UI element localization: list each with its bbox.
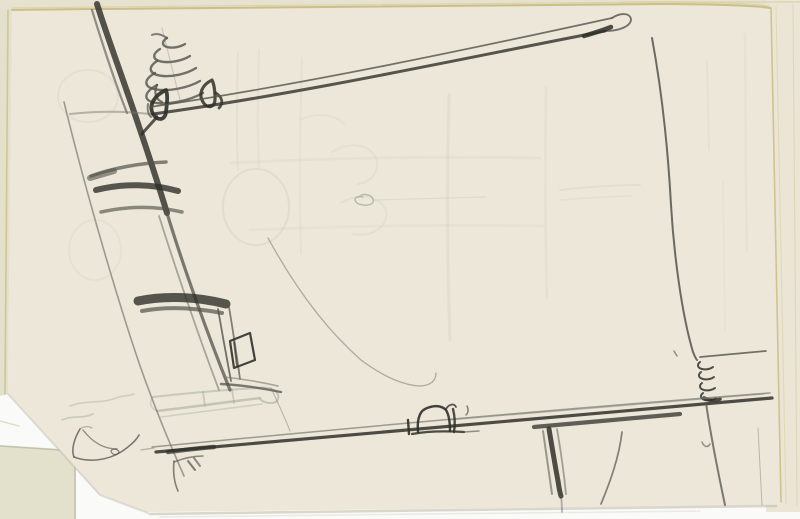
sketchbook-scan bbox=[0, 0, 800, 519]
sketch-drawing bbox=[0, 0, 800, 519]
